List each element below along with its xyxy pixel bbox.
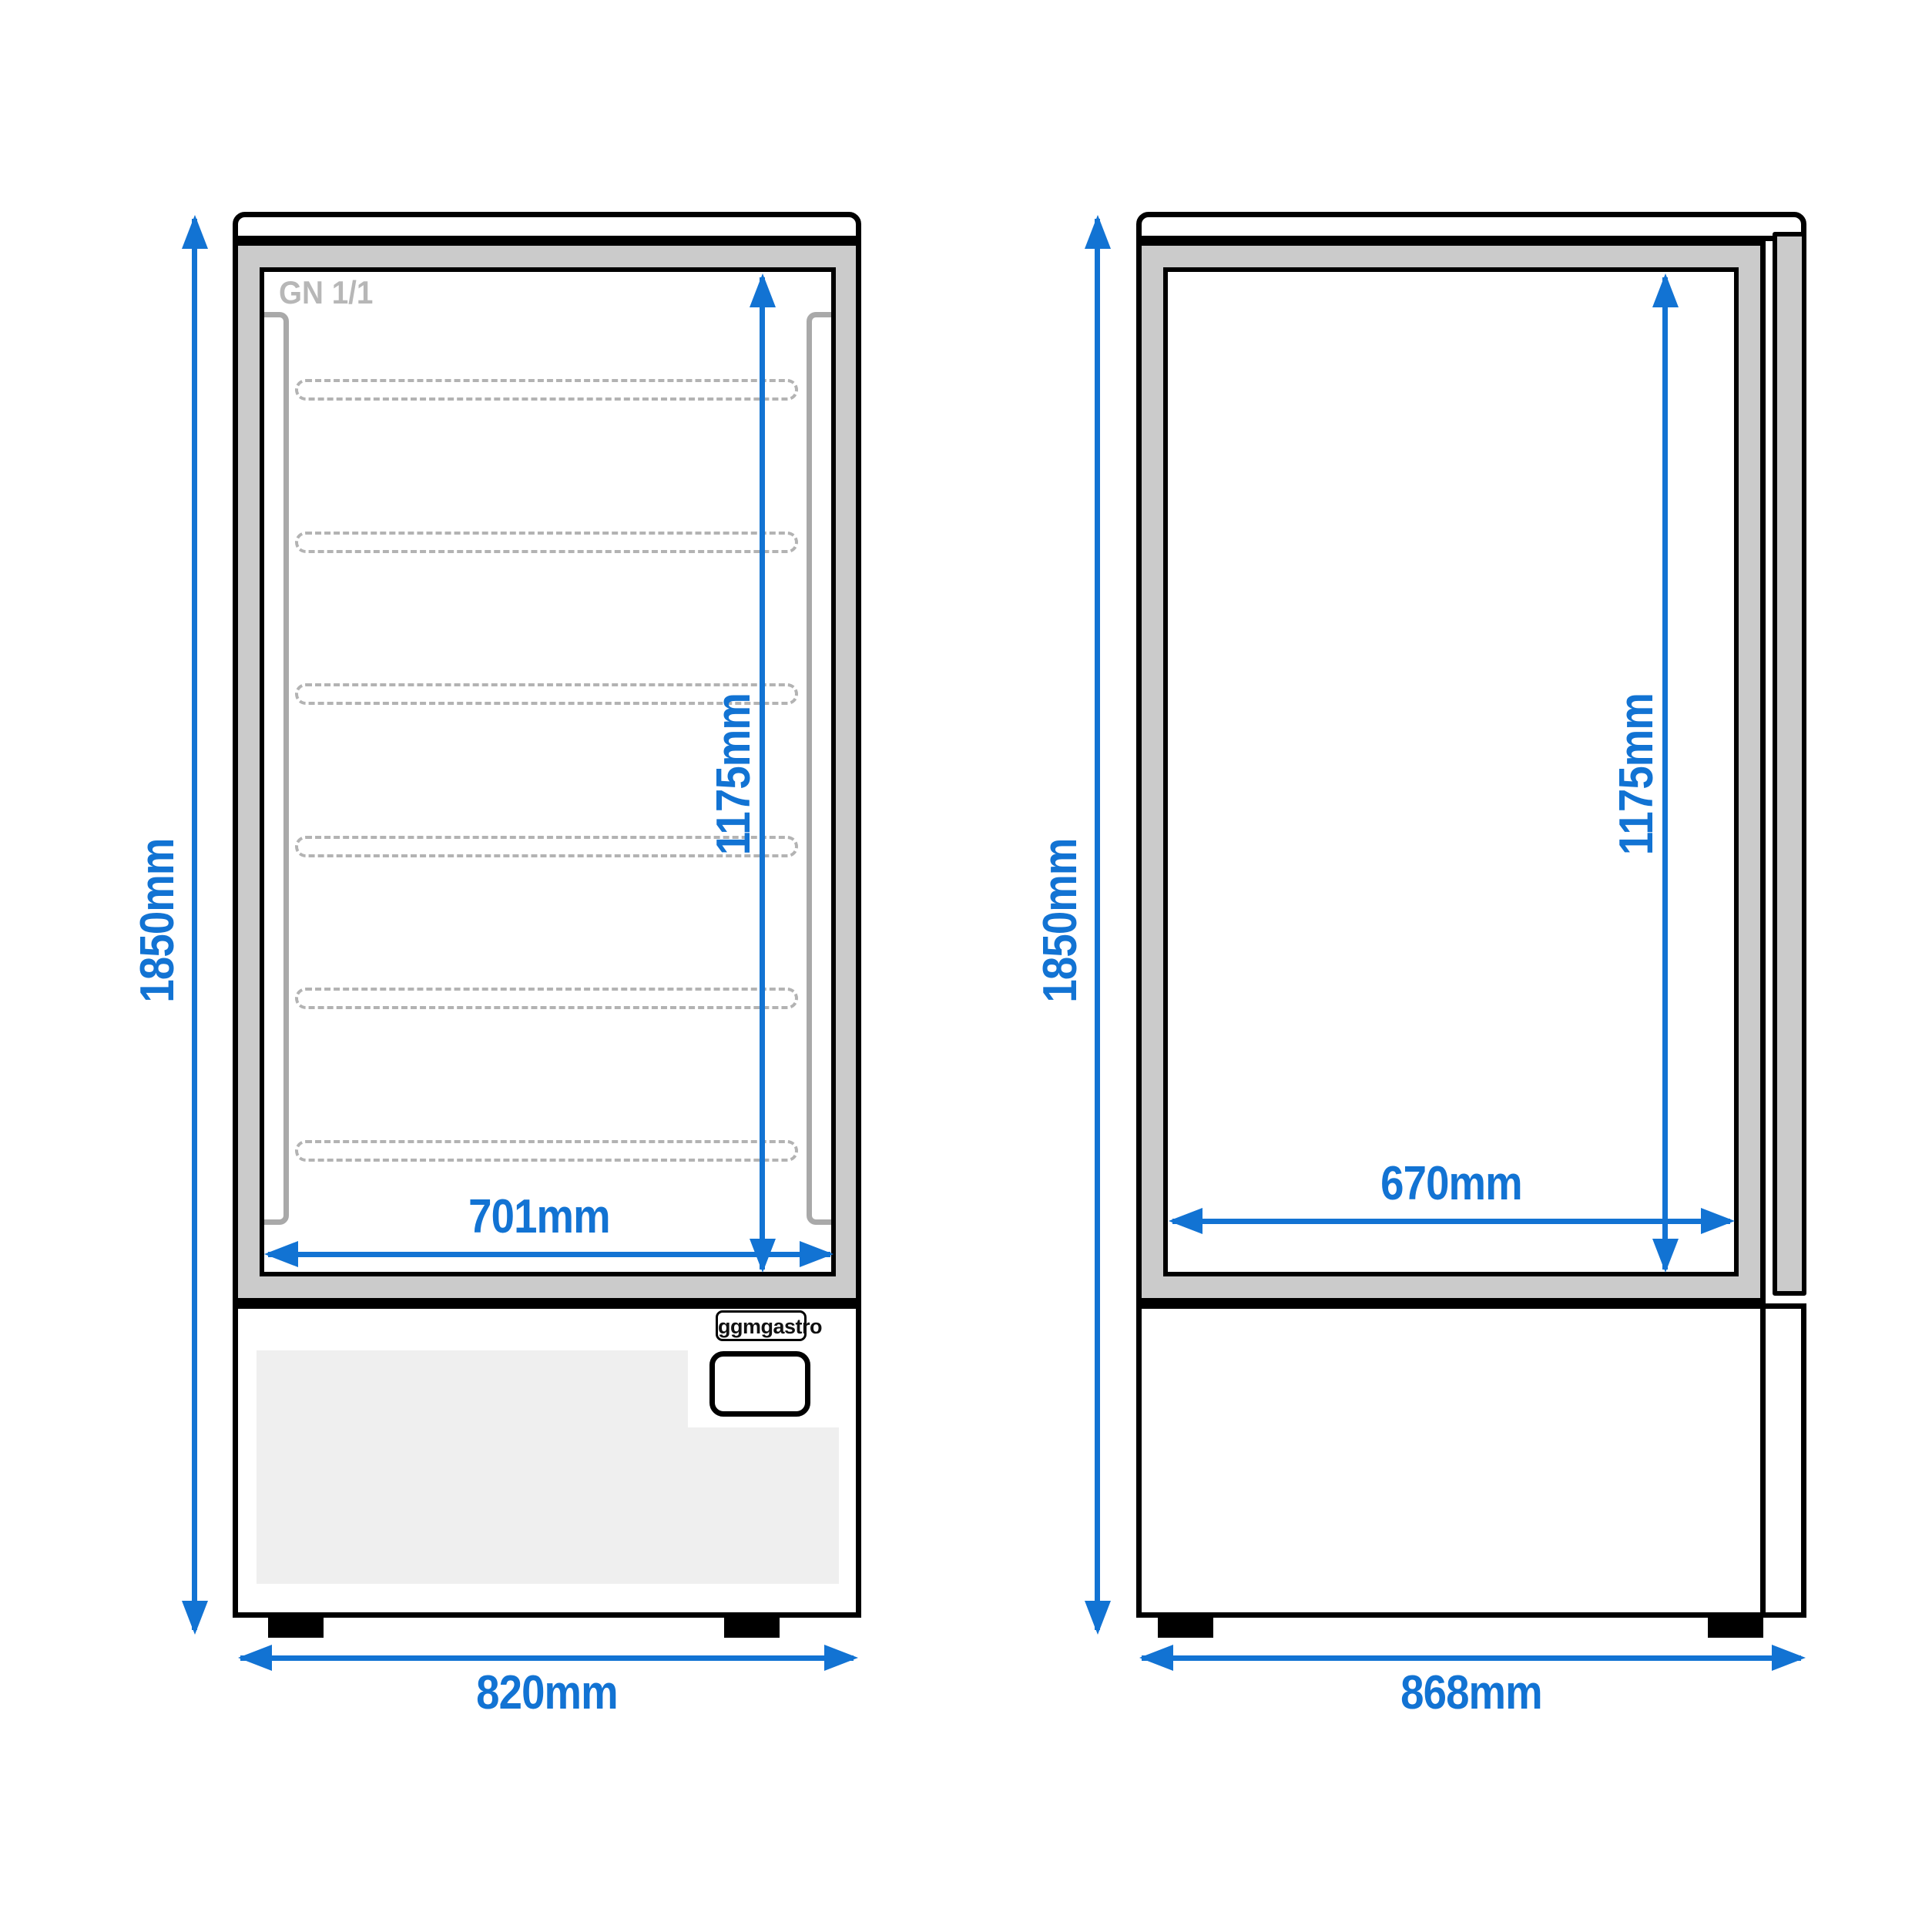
front-overall-width-dimension-line (240, 1655, 854, 1661)
front-panel-inset-upper (257, 1350, 688, 1584)
front-overall-width-label: 820mm (438, 1666, 656, 1720)
front-inner-width-label: 701mm (438, 1192, 641, 1242)
arrow-right-icon (1772, 1645, 1808, 1671)
brand-logo: ggmgastro (716, 1310, 807, 1341)
arrow-right-icon (824, 1645, 860, 1671)
arrow-down-icon (182, 1601, 208, 1637)
side-door-profile (1773, 232, 1806, 1296)
shelf-dashed-outline (295, 379, 798, 401)
arrow-right-icon (1701, 1208, 1737, 1234)
arrow-up-icon (750, 271, 776, 307)
side-overall-depth-dimension-line (1142, 1655, 1801, 1661)
shelf-dashed-outline (295, 988, 798, 1009)
side-overall-height-label: 1850mm (1034, 819, 1088, 1022)
front-inner-height-label: 1175mm (711, 676, 757, 872)
shelf-rail-left (264, 312, 289, 1225)
front-foot-right (724, 1618, 780, 1638)
arrow-left-icon (236, 1645, 272, 1671)
front-top-cap (233, 212, 861, 241)
side-inner-height-label: 1175mm (1614, 676, 1660, 872)
arrow-down-icon (1652, 1239, 1679, 1275)
technical-drawing-canvas: 1850mm GN 1/1 1175mm 701mm ggmgastro (0, 0, 1932, 1932)
arrow-up-icon (1652, 271, 1679, 307)
arrow-left-icon (1137, 1645, 1173, 1671)
arrow-up-icon (1085, 213, 1111, 249)
arrow-down-icon (1085, 1601, 1111, 1637)
gastronorm-size-label: GN 1/1 (279, 274, 373, 311)
arrow-left-icon (1166, 1208, 1202, 1234)
shelf-rail-right (807, 312, 831, 1225)
front-overall-height-dimension-line (192, 219, 197, 1630)
front-inner-width-dimension-line (268, 1252, 830, 1257)
side-foot-right (1708, 1618, 1763, 1638)
front-panel-inset-lower (688, 1427, 839, 1584)
shelf-dashed-outline (295, 532, 798, 553)
arrow-left-icon (262, 1241, 298, 1267)
side-top-cap (1136, 212, 1806, 241)
side-door-lower-divider (1760, 1309, 1766, 1612)
front-foot-left (268, 1618, 324, 1638)
arrow-up-icon (182, 213, 208, 249)
side-inner-height-dimension-line (1662, 277, 1668, 1270)
side-overall-depth-label: 868mm (1363, 1666, 1580, 1720)
side-overall-height-dimension-line (1095, 219, 1100, 1630)
front-overall-height-label: 1850mm (131, 819, 185, 1022)
front-inner-height-dimension-line (760, 277, 765, 1270)
side-foot-left (1158, 1618, 1213, 1638)
arrow-right-icon (800, 1241, 836, 1267)
shelf-dashed-outline (295, 1140, 798, 1162)
side-inner-depth-label: 670mm (1350, 1159, 1553, 1209)
side-inner-depth-dimension-line (1172, 1219, 1730, 1224)
controller-display (709, 1351, 810, 1417)
side-lower-cabinet (1136, 1303, 1806, 1618)
